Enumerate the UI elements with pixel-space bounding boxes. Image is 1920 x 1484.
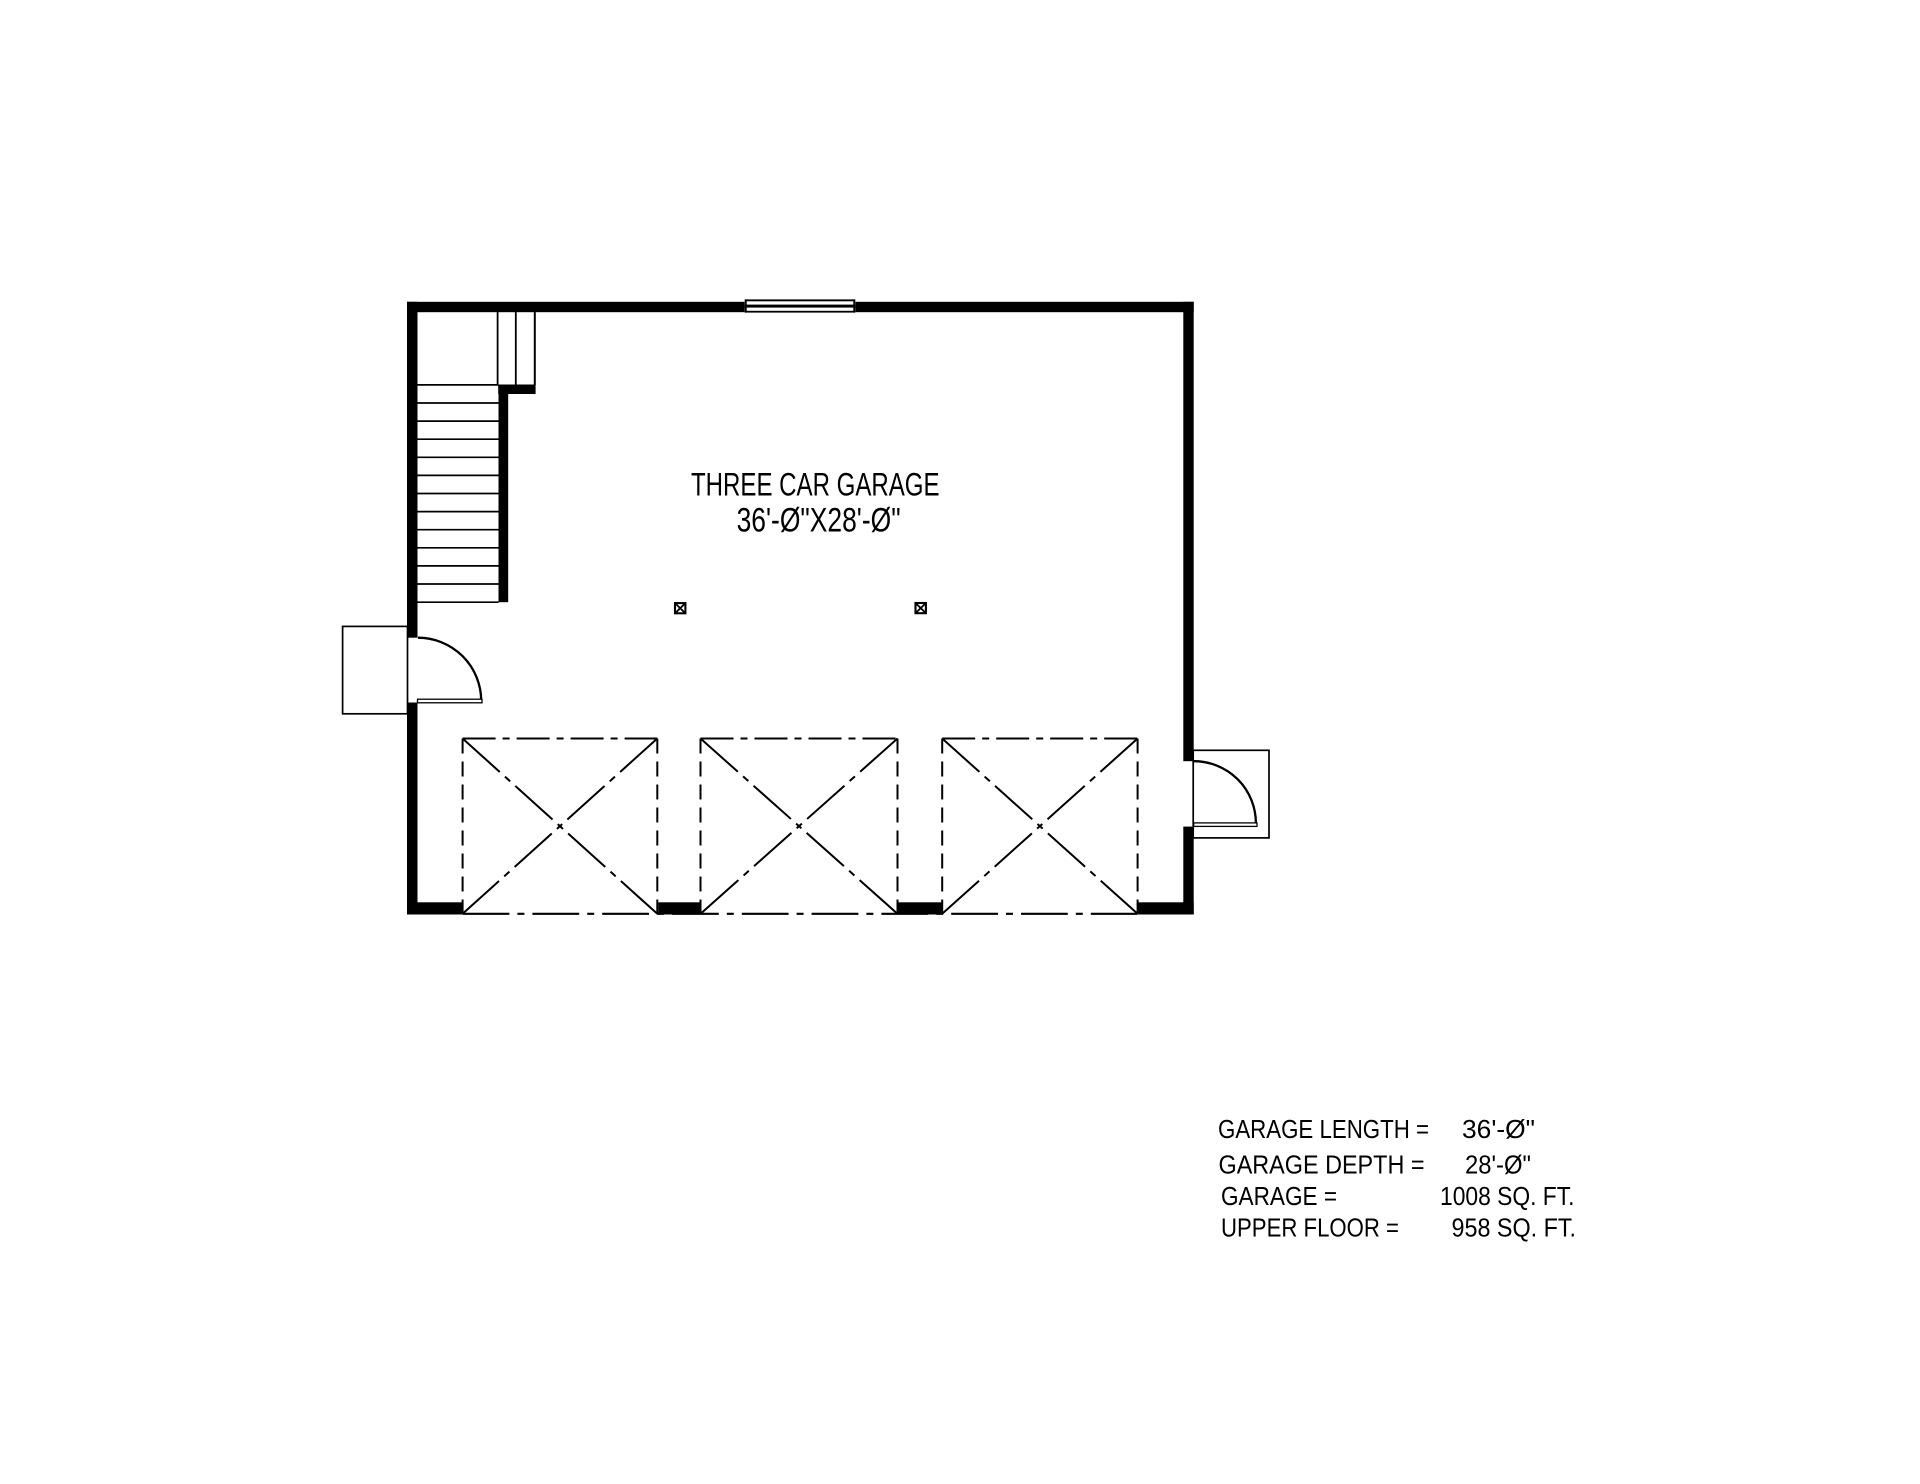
svg-text:GARAGE DEPTH =: GARAGE DEPTH = (1219, 1152, 1425, 1180)
svg-text:GARAGE =: GARAGE = (1221, 1183, 1337, 1211)
svg-text:36'-Ø"X28'-Ø": 36'-Ø"X28'-Ø" (737, 501, 901, 539)
svg-text:958 SQ. FT.: 958 SQ. FT. (1452, 1215, 1577, 1243)
svg-text:28'-Ø": 28'-Ø" (1465, 1152, 1531, 1180)
svg-text:UPPER FLOOR =: UPPER FLOOR = (1221, 1215, 1399, 1243)
svg-text:GARAGE LENGTH =: GARAGE LENGTH = (1218, 1116, 1429, 1144)
svg-text:36'-Ø": 36'-Ø" (1462, 1116, 1535, 1144)
svg-text:1008 SQ. FT.: 1008 SQ. FT. (1440, 1183, 1575, 1211)
svg-text:THREE CAR GARAGE: THREE CAR GARAGE (691, 466, 940, 502)
